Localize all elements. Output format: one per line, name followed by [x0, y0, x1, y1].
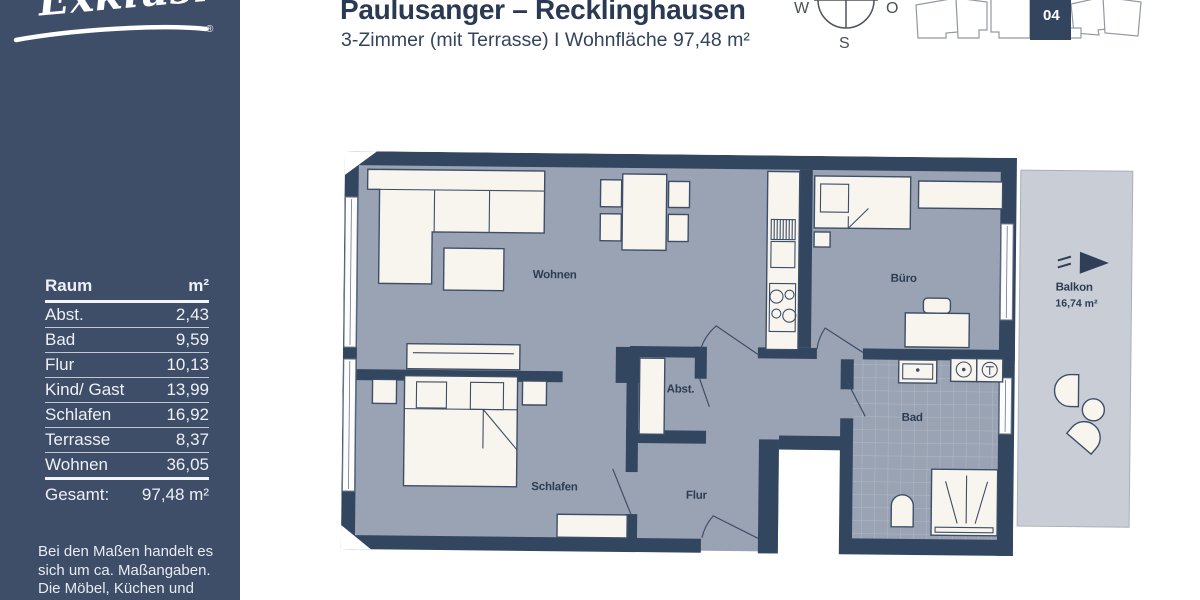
- double-bed: [403, 376, 517, 487]
- balcony-floor: [1017, 170, 1133, 527]
- table-header: Raum m²: [45, 274, 209, 303]
- table-row: Flur 10,13: [45, 353, 209, 378]
- room-area-table: Raum m² Abst. 2,43 Bad 9,59 Flur 10,13 K…: [45, 274, 209, 507]
- table-row: Kind/ Gast 13,99: [45, 378, 209, 403]
- kitchen: [766, 171, 800, 349]
- balkon-area-label: 16,74 m²: [1055, 297, 1098, 309]
- total-value: 97,48 m²: [142, 486, 209, 503]
- coffee-table: [444, 248, 504, 291]
- compass-east: O: [886, 0, 898, 17]
- nightstand: [522, 381, 546, 405]
- sidebar: Exklusiv ® Raum m² Abst. 2,43 Bad 9,59 F…: [0, 0, 240, 600]
- disclaimer-text: Bei den Maßen handelt es sich um ca. Maß…: [38, 543, 233, 600]
- row-label: Terrasse: [45, 431, 110, 448]
- compass-icon: W O S: [780, 0, 915, 55]
- header-area: m²: [188, 277, 209, 294]
- dining-table: [622, 174, 667, 250]
- side-table: [814, 232, 830, 247]
- unit-locator: 04: [902, 0, 1150, 44]
- page-subtitle: 3-Zimmer (mit Terrasse) I Wohnfläche 97,…: [341, 29, 750, 52]
- dining-chair: [668, 214, 688, 241]
- shelf: [918, 181, 1002, 209]
- row-value: 36,05: [166, 456, 209, 473]
- desk: [905, 313, 969, 348]
- dining-chair: [600, 214, 621, 241]
- table-row: Schlafen 16,92: [45, 403, 209, 428]
- total-label: Gesamt:: [45, 486, 109, 503]
- room-label-wohnen: Wohnen: [533, 269, 577, 281]
- balcony-table: [1082, 399, 1104, 421]
- table-row: Bad 9,59: [45, 328, 209, 353]
- room-label-schlafen: Schlafen: [531, 481, 578, 493]
- unit-number: 04: [1043, 7, 1060, 24]
- table-row: Abst. 2,43: [45, 303, 209, 328]
- registered-mark: ®: [206, 24, 213, 35]
- desk-chair: [923, 298, 950, 313]
- room-label-bad: Bad: [902, 412, 923, 424]
- row-value: 9,59: [176, 331, 209, 348]
- shower: [931, 469, 998, 536]
- brand-logo: Exklusiv ®: [10, 0, 230, 54]
- row-label: Bad: [45, 331, 75, 348]
- row-label: Schlafen: [45, 406, 111, 423]
- storage-cabinet: [639, 358, 665, 434]
- row-value: 13,99: [166, 381, 209, 398]
- row-value: 2,43: [176, 306, 209, 323]
- room-label-buero: Büro: [891, 273, 917, 285]
- table-row: Terrasse 8,37: [45, 428, 209, 453]
- table-total-row: Gesamt: 97,48 m²: [45, 480, 209, 507]
- page-title: Paulusanger – Recklinghausen: [340, 0, 746, 25]
- compass-west: W: [794, 0, 810, 17]
- row-label: Kind/ Gast: [45, 381, 124, 398]
- room-label-abst: Abst.: [667, 383, 695, 395]
- room-label-balkon: Balkon: [1056, 281, 1093, 293]
- table-row: Wohnen 36,05: [45, 453, 209, 480]
- room-label-flur: Flur: [686, 490, 708, 502]
- dining-chair: [600, 180, 621, 207]
- wardrobe: [407, 344, 520, 370]
- dresser: [557, 514, 627, 538]
- row-label: Wohnen: [45, 456, 108, 473]
- row-value: 8,37: [176, 431, 209, 448]
- nightstand: [372, 379, 396, 403]
- row-value: 10,13: [166, 356, 209, 373]
- dining-chair: [668, 181, 689, 207]
- compass-south: S: [839, 35, 850, 52]
- floorplan-page: Exklusiv ® Raum m² Abst. 2,43 Bad 9,59 F…: [0, 0, 1200, 600]
- building-recess: [778, 450, 841, 557]
- header-room: Raum: [45, 277, 92, 294]
- row-label: Abst.: [45, 306, 84, 323]
- floor-plan: Wohnen Büro Schlafen Flur Bad Abst. Balk…: [341, 151, 1135, 559]
- row-value: 16,92: [166, 406, 209, 423]
- toilet: [891, 495, 913, 527]
- row-label: Flur: [45, 356, 74, 373]
